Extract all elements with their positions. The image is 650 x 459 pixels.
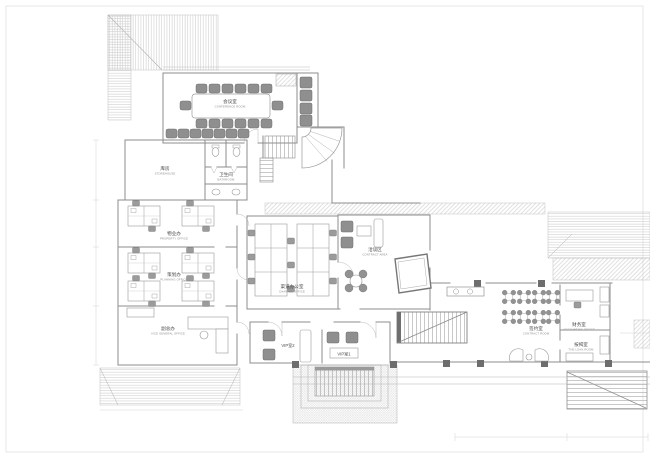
sofa — [374, 219, 383, 247]
spiral-staircase — [260, 128, 342, 182]
desk — [566, 290, 593, 301]
room-storehouse: 库房 STOREHOUSE — [155, 165, 176, 176]
room-vip1: VIP室1 — [327, 332, 358, 358]
room-sublabel-accounting: ACCOUNTING OFFICE — [563, 328, 595, 332]
room-property-office: 物业办 PROPERTY OFFICE — [128, 201, 214, 241]
room-sublabel-vice-general: VICE GENERAL OFFICE — [151, 332, 185, 336]
stair-down-run — [260, 158, 273, 182]
door-swings — [211, 129, 376, 338]
room-conference: 会议室 CONFERENCE ROOM — [166, 74, 312, 138]
desk-cluster — [182, 248, 214, 279]
room-label-vip1: VIP室1 — [337, 351, 351, 357]
cabinet — [600, 305, 609, 317]
room-sublabel-bathroom: BATHROOM — [218, 178, 235, 182]
bench — [127, 308, 154, 317]
lounge-seating — [509, 349, 548, 361]
room-sublabel-storehouse: STOREHOUSE — [155, 172, 176, 176]
column — [474, 280, 481, 287]
room-loan: 按揭室 THE LOAN ROOM — [566, 336, 609, 361]
column — [292, 361, 299, 368]
armchair — [341, 237, 353, 248]
sink — [212, 189, 220, 195]
column — [605, 360, 612, 367]
roof-right-band — [553, 258, 650, 280]
water-bar — [447, 287, 484, 296]
office-chair — [200, 331, 208, 339]
entrance-threshold — [315, 367, 374, 371]
room-sublabel-loan: THE LOAN ROOM — [568, 348, 594, 352]
entrance-plaza — [293, 365, 397, 423]
interior-stair — [397, 312, 467, 343]
room-sublabel-signing: CONTRACT ROOM — [523, 332, 550, 336]
column — [477, 360, 484, 367]
armchair — [263, 349, 275, 360]
floor-plan-sheet: 会议室 CONFERENCE ROOM 库房 STOREHOUSE 卫生间 BA… — [0, 0, 650, 459]
desk-cluster — [128, 276, 160, 307]
roof-far-right — [634, 320, 650, 348]
eave-band-center — [265, 203, 545, 214]
room-sublabel-conference: CONFERENCE ROOM — [215, 105, 246, 109]
round-table-group — [345, 270, 367, 292]
room-label-vip2: VIP室2 — [281, 342, 295, 348]
room-sublabel-property: PROPERTY OFFICE — [160, 237, 188, 241]
planter — [276, 74, 296, 86]
column — [390, 361, 397, 368]
armchair — [346, 332, 358, 343]
desk-cluster — [128, 248, 160, 279]
room-sublabel-planning: PLANNING OFFICE — [160, 278, 187, 282]
wall-storehouse-bathroom — [125, 140, 247, 200]
desk-return — [216, 329, 228, 353]
room-sublabel-channel: CHANNEL OFFICE — [279, 290, 305, 294]
column — [538, 280, 545, 287]
room-channel-office: 渠道办公室 CHANNEL OFFICE — [248, 224, 337, 296]
office-chair — [574, 302, 581, 308]
toilet — [212, 145, 219, 156]
model-display — [395, 254, 431, 293]
room-vice-general-office: 副总办 VICE GENERAL OFFICE — [127, 308, 228, 353]
niche-chairs — [300, 77, 312, 126]
stair-straight-run — [265, 136, 295, 158]
floor-plan-drawing: 会议室 CONFERENCE ROOM 库房 STOREHOUSE 卫生间 BA… — [0, 0, 650, 459]
area-contract: 洽谈区 CONTRACT AREA — [341, 219, 431, 293]
coffee-table — [357, 226, 371, 236]
room-planning-office: 策划办 PLANNING OFFICE — [128, 248, 214, 307]
armchair — [327, 332, 339, 343]
room-vip2: VIP室2 — [263, 330, 311, 362]
armchair — [263, 330, 275, 341]
column — [443, 360, 450, 367]
desk — [566, 353, 593, 361]
executive-desk — [188, 317, 228, 329]
desk-cluster — [128, 201, 160, 232]
signing-tables — [502, 290, 560, 324]
sink — [232, 189, 240, 195]
roof-right-upper — [548, 212, 650, 258]
area-sublabel-contract: CONTRACT AREA — [362, 253, 387, 257]
desk-cluster — [182, 201, 214, 232]
eave-bottom-left — [100, 368, 240, 405]
sofa — [300, 330, 311, 362]
toilet — [233, 145, 240, 156]
entrance-steps — [315, 367, 374, 396]
room-accounting: 财务室 ACCOUNTING OFFICE — [563, 287, 609, 332]
armchair — [341, 221, 353, 232]
cabinet — [600, 336, 609, 354]
cabinet — [600, 287, 609, 302]
